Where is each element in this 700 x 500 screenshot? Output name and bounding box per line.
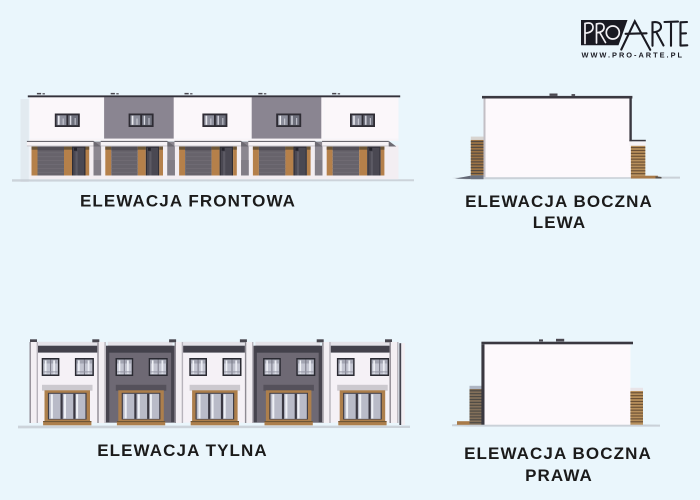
svg-text:LEWA: LEWA bbox=[533, 213, 587, 232]
svg-text:ELEWACJA BOCZNA: ELEWACJA BOCZNA bbox=[464, 444, 652, 463]
svg-text:WWW.PRO-ARTE.PL: WWW.PRO-ARTE.PL bbox=[582, 50, 683, 59]
svg-text:ELEWACJA FRONTOWA: ELEWACJA FRONTOWA bbox=[80, 191, 296, 210]
svg-text:PRAWA: PRAWA bbox=[525, 466, 593, 485]
svg-text:ELEWACJA TYLNA: ELEWACJA TYLNA bbox=[97, 441, 268, 460]
svg-text:ELEWACJA BOCZNA: ELEWACJA BOCZNA bbox=[465, 192, 653, 211]
